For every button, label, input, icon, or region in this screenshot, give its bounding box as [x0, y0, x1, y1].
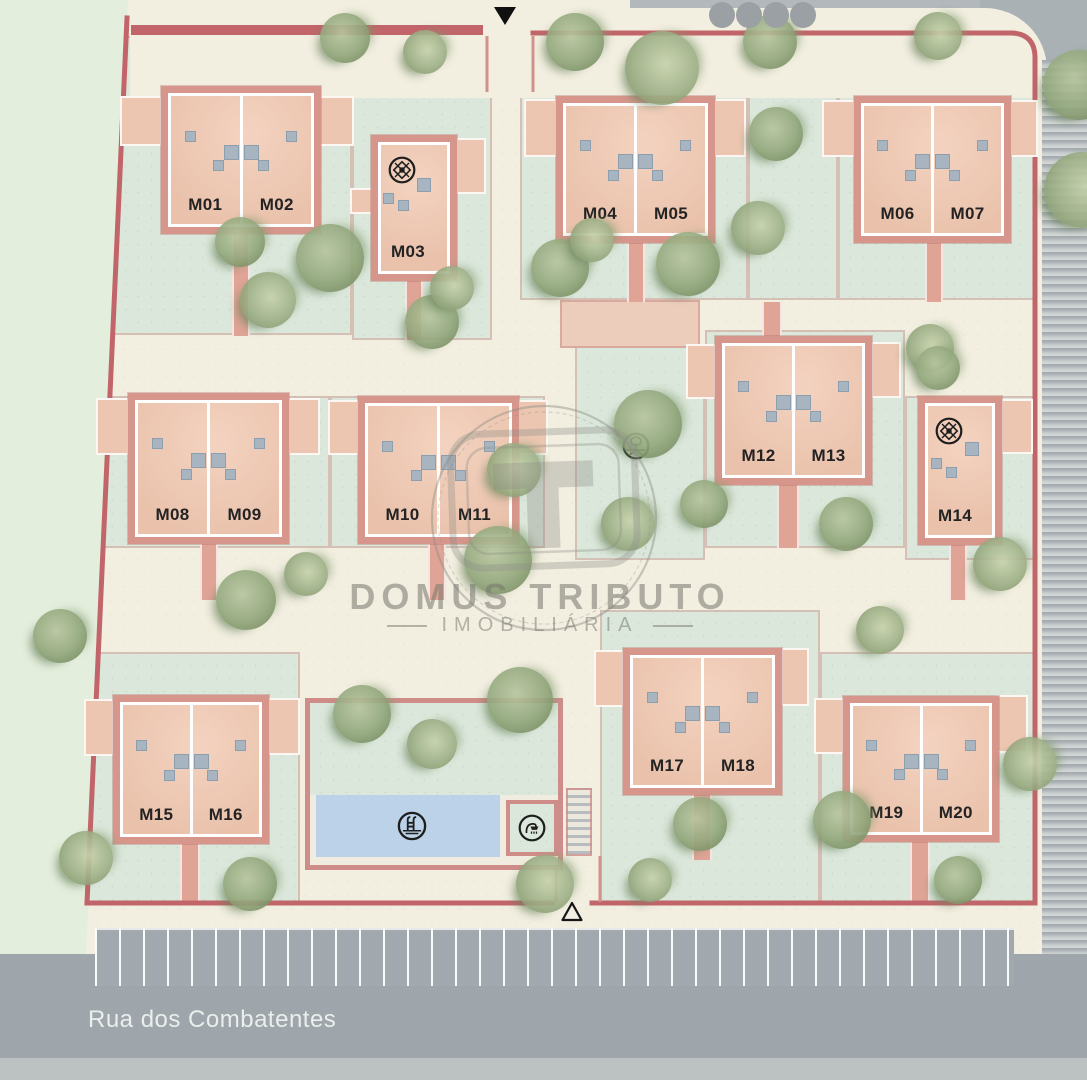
unit-M02: M02 — [240, 96, 312, 224]
garage-annex — [1010, 100, 1038, 157]
unit-M16: M16 — [190, 705, 260, 834]
tree — [625, 31, 699, 105]
gazebo-icon — [934, 416, 964, 451]
building-M17-M18: M17 M18 — [623, 648, 782, 795]
garage-annex — [268, 698, 300, 755]
unit-M01: M01 — [171, 96, 240, 224]
tree — [430, 266, 474, 310]
garage-annex — [328, 400, 359, 455]
building-M15-M16: M15 M16 — [113, 695, 269, 844]
unit-M03: M03 — [381, 145, 447, 271]
tree — [215, 217, 265, 267]
tree — [916, 346, 960, 390]
gray-dot-marker — [763, 2, 789, 28]
unit-label: M03 — [381, 242, 447, 262]
unit-label: M08 — [138, 505, 207, 525]
unit-label: M16 — [193, 805, 260, 825]
tree — [33, 609, 87, 663]
stairs — [566, 788, 592, 856]
tree — [546, 13, 604, 71]
dash — [387, 625, 427, 627]
tree — [973, 537, 1027, 591]
unit-M06: M06 — [864, 106, 931, 233]
unit-M20: M20 — [920, 706, 990, 832]
tree — [333, 685, 391, 743]
unit-M04: M04 — [566, 106, 634, 233]
building-M14: M14 — [918, 396, 1002, 545]
garage-annex — [814, 698, 844, 754]
unit-M18: M18 — [701, 658, 772, 785]
top-entrance-marker-icon — [494, 7, 516, 25]
building-M12-M13: M12 M13 — [715, 336, 872, 485]
garage-annex — [1001, 399, 1033, 454]
garage-annex — [120, 96, 162, 146]
building-M01-M02: M01 M02 — [161, 86, 321, 234]
unit-M13: M13 — [792, 346, 862, 475]
garage-annex — [871, 342, 901, 398]
unit-label: M20 — [923, 803, 990, 823]
garage-annex — [714, 99, 746, 157]
unit-label: M15 — [123, 805, 190, 825]
gray-dot-marker — [736, 2, 762, 28]
shower-icon — [517, 813, 547, 848]
tree — [628, 858, 672, 902]
gray-dot-marker — [709, 2, 735, 28]
unit-M17: M17 — [633, 658, 701, 785]
watermark-logo — [438, 420, 650, 588]
unit-label: M14 — [928, 506, 992, 526]
tree — [1003, 737, 1057, 791]
unit-label: M02 — [243, 195, 312, 215]
tree — [673, 797, 727, 851]
tree — [320, 13, 370, 63]
garage-annex — [822, 100, 855, 157]
tree — [487, 667, 553, 733]
unit-label: M17 — [633, 756, 701, 776]
tree — [749, 107, 803, 161]
tree — [813, 791, 871, 849]
unit-M12: M12 — [725, 346, 792, 475]
unit-M14: M14 — [928, 406, 992, 535]
unit-label: M07 — [934, 204, 1001, 224]
dash — [653, 625, 693, 627]
garage-annex — [524, 99, 557, 157]
tree — [296, 224, 364, 292]
tree — [680, 480, 728, 528]
unit-M09: M09 — [207, 403, 279, 534]
tree — [656, 232, 720, 296]
garage-annex — [781, 648, 809, 706]
unit-label: M18 — [704, 756, 772, 776]
tree — [240, 272, 296, 328]
unit-label: M13 — [795, 446, 862, 466]
unit-label: M06 — [864, 204, 931, 224]
tree — [570, 218, 614, 262]
site-plan: Rua dos Combatentes — [0, 0, 1087, 1080]
pool-ladder-icon — [396, 810, 428, 847]
garage-annex — [316, 96, 354, 146]
building-M06-M07: M06 M07 — [854, 96, 1011, 243]
tree — [216, 570, 276, 630]
unit-M07: M07 — [931, 106, 1001, 233]
gazebo-icon — [387, 155, 417, 190]
garage-annex — [594, 650, 624, 707]
unit-M08: M08 — [138, 403, 207, 534]
garage-annex — [456, 138, 486, 194]
tree — [819, 497, 873, 551]
bottom-entrance-marker-icon — [561, 901, 583, 922]
tree — [856, 606, 904, 654]
gray-dot-marker — [790, 2, 816, 28]
tree — [731, 201, 785, 255]
unit-label: M12 — [725, 446, 792, 466]
garage-annex — [686, 344, 716, 399]
watermark-brand: DOMUS TRIBUTO — [270, 576, 810, 618]
tree — [914, 12, 962, 60]
unit-M15: M15 — [123, 705, 190, 834]
garage-annex — [84, 699, 114, 756]
garage-annex — [96, 398, 129, 455]
unit-label: M01 — [171, 195, 240, 215]
tree — [223, 857, 277, 911]
tree — [934, 856, 982, 904]
tree — [407, 719, 457, 769]
building-M08-M09: M08 M09 — [128, 393, 289, 544]
building-M03: M03 — [371, 135, 457, 281]
tree — [59, 831, 113, 885]
garage-annex — [288, 398, 320, 455]
unit-M05: M05 — [634, 106, 705, 233]
unit-label: M05 — [637, 204, 705, 224]
unit-label: M09 — [210, 505, 279, 525]
tree — [403, 30, 447, 74]
watermark-tagline: IMOBILIÁRIA — [270, 614, 810, 637]
